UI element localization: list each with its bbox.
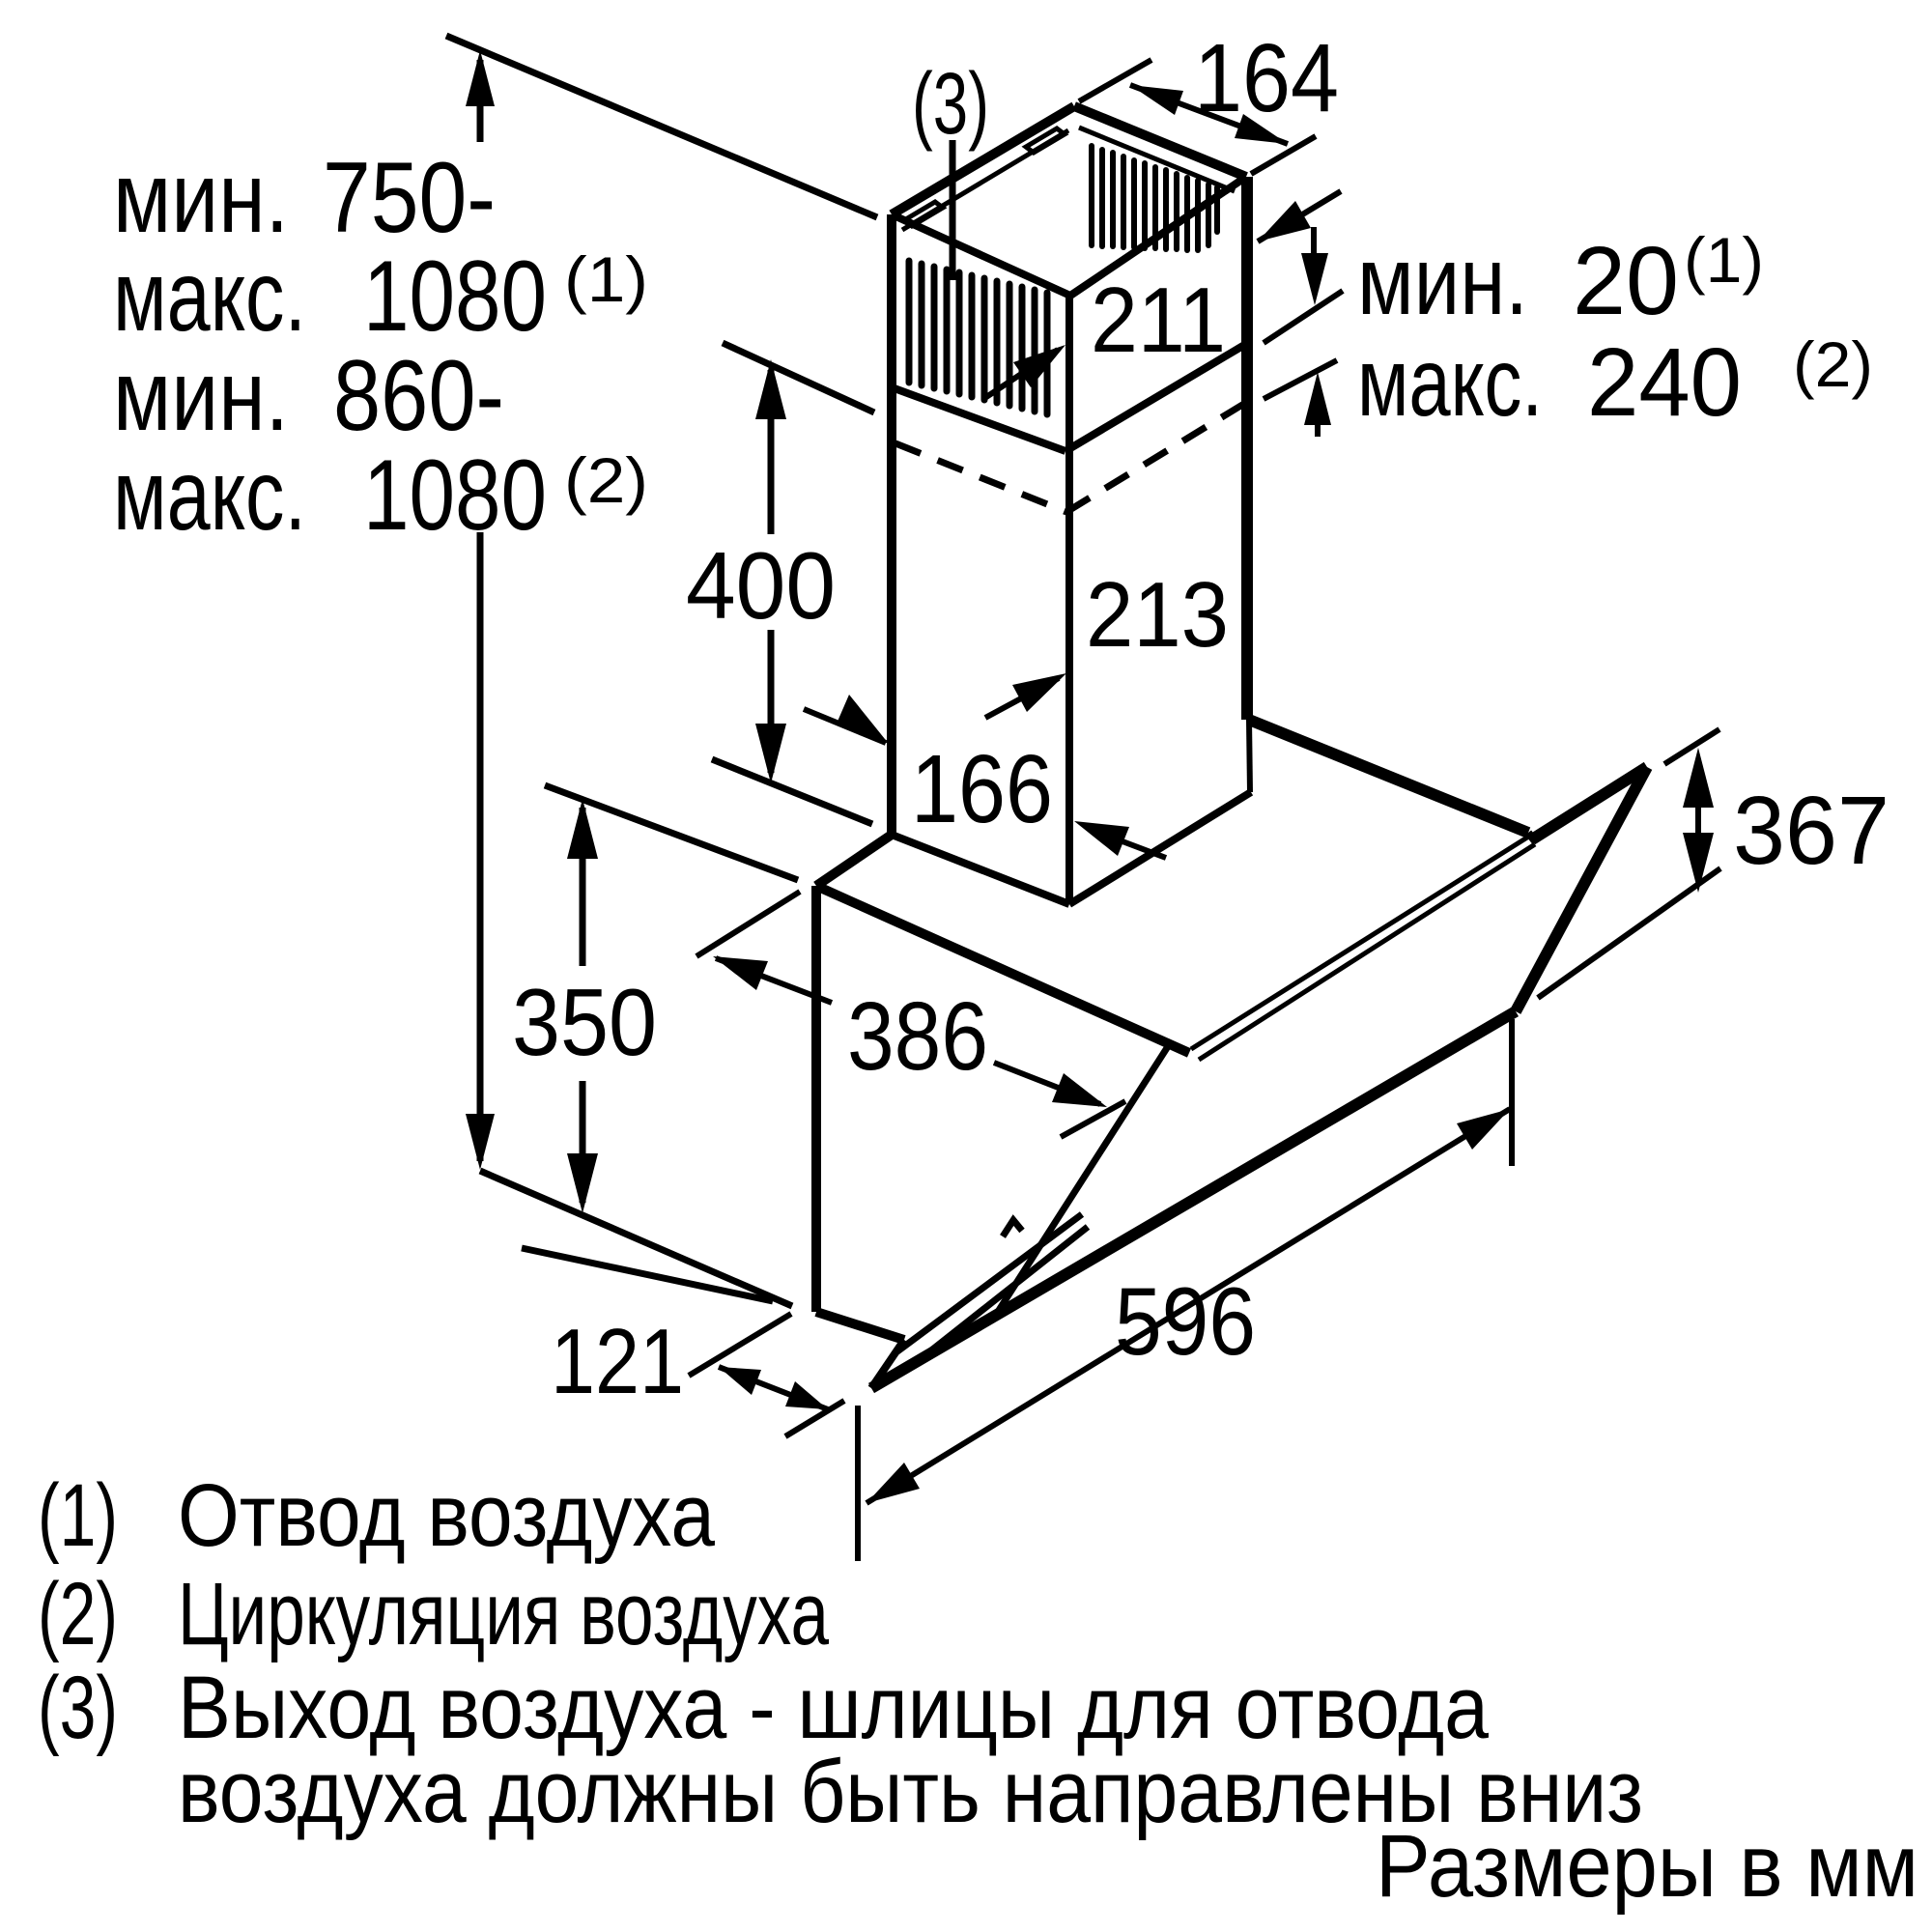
svg-text:750-: 750- [323,142,496,254]
svg-text:Размеры в мм: Размеры в мм [1376,1817,1918,1916]
svg-text:213: 213 [1086,563,1229,667]
svg-text:(1): (1) [1684,224,1764,296]
svg-text:350: 350 [512,969,657,1075]
svg-text:(2): (2) [1793,328,1873,400]
svg-text:860-: 860- [333,340,504,452]
svg-text:мин.: мин. [113,142,289,254]
svg-text:596: 596 [1115,1267,1256,1375]
svg-text:мин.: мин. [113,340,289,452]
svg-text:макс.: макс. [113,241,306,353]
svg-text:(1): (1) [564,243,648,315]
svg-text:166: 166 [911,735,1053,843]
svg-text:164: 164 [1194,24,1339,132]
svg-text:211: 211 [1091,269,1226,372]
svg-text:(3): (3) [912,56,989,153]
svg-text:Отвод воздуха: Отвод воздуха [178,1466,716,1565]
svg-text:400: 400 [686,532,836,639]
svg-text:мин.: мин. [1357,227,1528,335]
svg-text:386: 386 [847,982,988,1091]
svg-text:(1): (1) [38,1466,118,1565]
svg-text:1080: 1080 [363,241,547,353]
svg-text:Циркуляция воздуха: Циркуляция воздуха [178,1565,830,1663]
svg-text:1080: 1080 [363,440,547,552]
svg-text:макс.: макс. [1357,328,1543,437]
svg-text:20: 20 [1573,227,1679,335]
svg-text:(2): (2) [564,444,648,516]
svg-text:(3): (3) [38,1659,118,1757]
svg-text:макс.: макс. [113,440,306,552]
svg-text:367: 367 [1733,777,1889,885]
svg-text:240: 240 [1587,328,1742,437]
svg-text:121: 121 [551,1310,684,1413]
svg-text:(2): (2) [38,1565,118,1663]
